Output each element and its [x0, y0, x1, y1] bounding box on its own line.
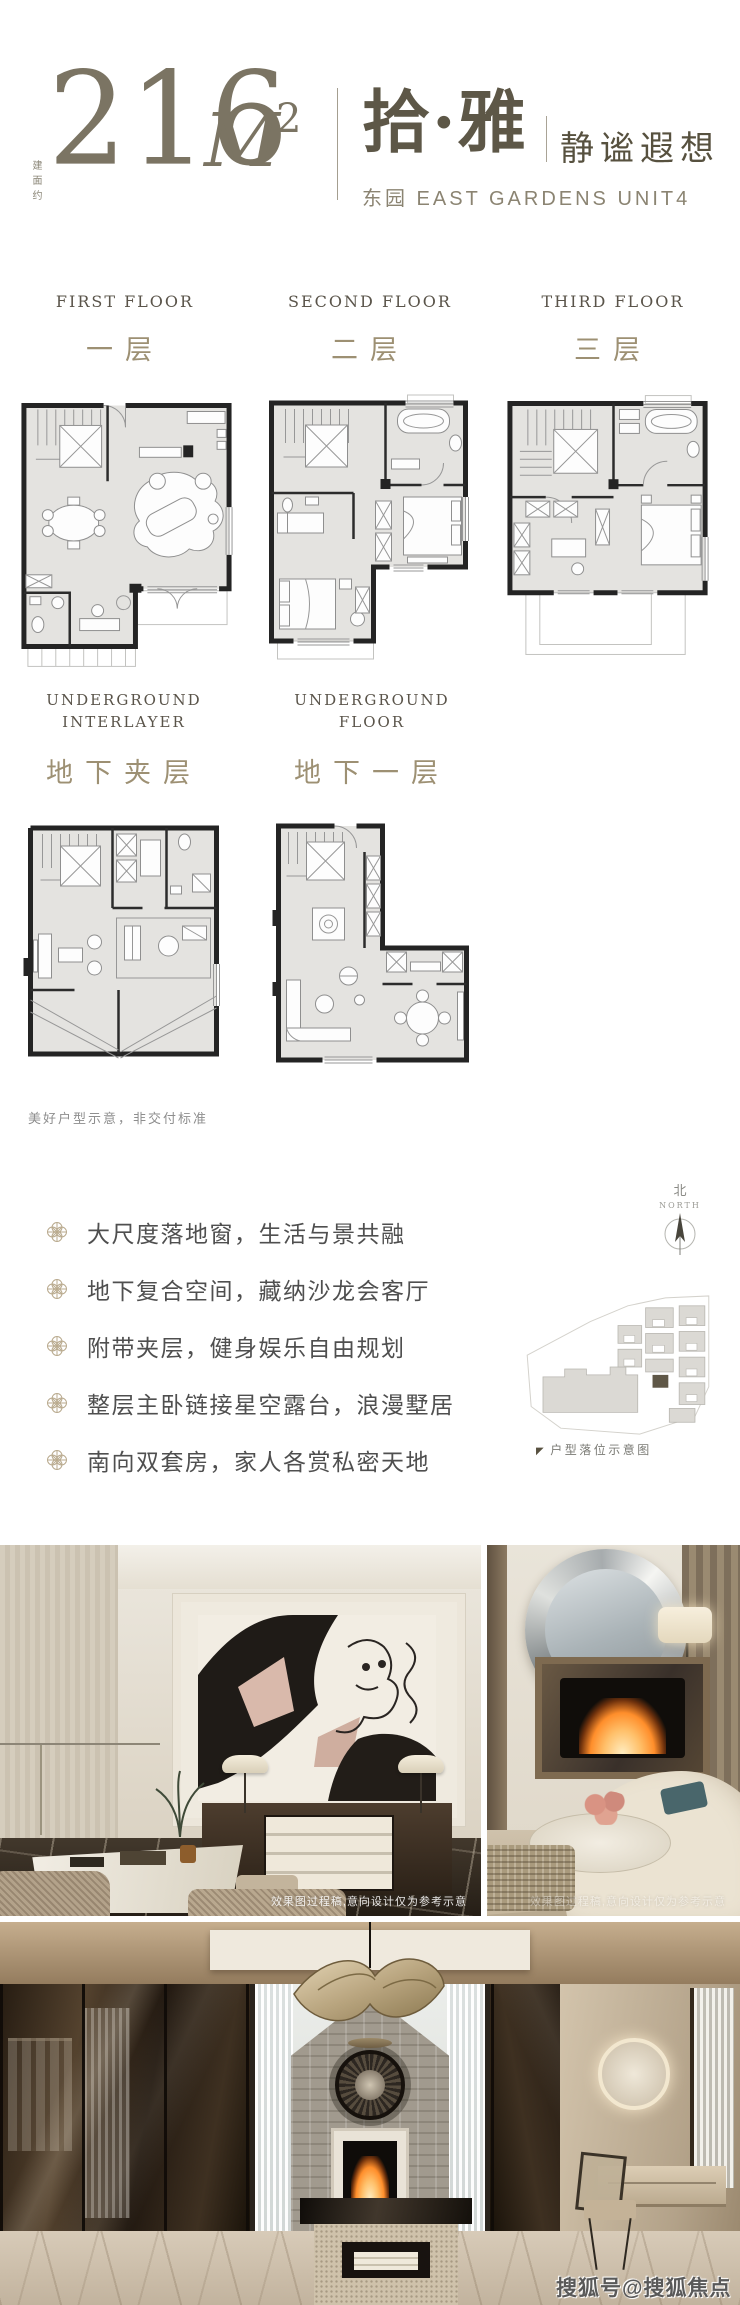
- fire-flames: [579, 1698, 667, 1754]
- wall-panel: [0, 1545, 118, 1853]
- area-unit: M: [204, 104, 280, 178]
- fireplace: [535, 1657, 710, 1779]
- floor-label-cn: 地下一层: [258, 751, 486, 790]
- area-prefix: 建面约: [28, 160, 43, 205]
- highlighted-unit: [653, 1375, 669, 1388]
- plant: [150, 1767, 210, 1842]
- pendant-saucer: [348, 2038, 392, 2048]
- floorplan-second-floor: [253, 389, 487, 674]
- disclaimer-text: 美好户型示意，非交付标准: [28, 1108, 208, 1127]
- feature-item: 大尺度落地窗，生活与景共融: [44, 1203, 455, 1260]
- feature-text: 大尺度落地窗，生活与景共融: [87, 1215, 406, 1249]
- floor-column-third: THIRD FLOOR 三层: [496, 292, 730, 674]
- table-lamp: [222, 1755, 268, 1813]
- page: 建面约 216 M 2 拾·雅 静谧遐想 东园 EAST GARDENS UNI…: [0, 0, 740, 2305]
- photo-fireplace-lounge: 效果图过程稿,意向设计仅为参考示意: [487, 1545, 740, 1916]
- pendant-lamp: [288, 1950, 452, 2047]
- floor-lamp: [658, 1607, 712, 1643]
- floor-label-cn: 三层: [496, 328, 730, 367]
- feature-list: 大尺度落地窗，生活与景共融 地下复合空间，藏纳沙龙会客厅 附带夹层，健身娱乐自由…: [44, 1203, 455, 1488]
- north-compass-icon: [658, 1210, 702, 1258]
- floorplan-underground-floor: [258, 816, 486, 1071]
- sunburst-ornament: [335, 2050, 405, 2120]
- vanity-mirror: [598, 2038, 670, 2110]
- watermark: 搜狐号@搜狐焦点鄂州站: [556, 2272, 740, 2305]
- island-niche: [342, 2242, 430, 2278]
- unit-name: 拾·雅: [362, 86, 528, 161]
- subtitle: 东园 EAST GARDENS UNIT4: [362, 182, 690, 211]
- stair-railing: [0, 1743, 160, 1745]
- floor-label-en: SECOND FLOOR: [253, 292, 487, 311]
- floorplan-first-floor-svg: [8, 389, 242, 669]
- feature-item: 南向双套房，家人各赏私密天地: [44, 1431, 455, 1488]
- stone-island: [314, 2224, 458, 2305]
- floor-label-en: THIRD FLOOR: [496, 292, 730, 311]
- floorplan-underground-floor-svg: [264, 816, 480, 1066]
- towels: [354, 2252, 418, 2270]
- flower-bouquet: [579, 1791, 633, 1825]
- siteplan-caption: ◤户型落位示意图: [536, 1441, 652, 1458]
- flower-bullet-icon: [44, 1219, 70, 1245]
- photo-living-room-art: 效果图过程稿,意向设计仅为参考示意: [0, 1545, 481, 1916]
- table-lamp: [398, 1755, 444, 1813]
- feature-text: 附带夹层，健身娱乐自由规划: [87, 1329, 406, 1363]
- feature-text: 南向双套房，家人各赏私密天地: [87, 1443, 430, 1477]
- siteplan-marker-icon: ◤: [536, 1446, 546, 1457]
- armchair: [0, 1871, 110, 1916]
- siteplan-svg: [520, 1292, 715, 1442]
- feature-item: 地下复合空间，藏纳沙龙会客厅: [44, 1260, 455, 1317]
- window-right: [690, 1988, 734, 2188]
- floor-label-en: UNDERGROUND INTERLAYER: [39, 690, 209, 734]
- feature-text: 整层主卧链接星空露台，浪漫墅居: [87, 1386, 455, 1420]
- photo-dressing-room: [0, 1922, 740, 2305]
- flower-bullet-icon: [44, 1390, 70, 1416]
- feature-item: 整层主卧链接星空露台，浪漫墅居: [44, 1374, 455, 1431]
- island-counter-top: [300, 2198, 472, 2224]
- floor-label-cn: 地下夹层: [10, 751, 238, 790]
- flower-bullet-icon: [44, 1276, 70, 1302]
- feature-text: 地下复合空间，藏纳沙龙会客厅: [87, 1272, 430, 1306]
- floorplan-third-floor: [496, 389, 730, 674]
- header-divider-small: [546, 116, 547, 162]
- glass-wardrobe-left: [0, 1978, 250, 2231]
- north-label-en: NORTH: [652, 1201, 708, 1210]
- floor-column-underground-interlayer: UNDERGROUND INTERLAYER 地下夹层: [10, 690, 238, 1071]
- floorplan-third-floor-svg: [496, 389, 730, 669]
- tagline: 静谧遐想: [560, 121, 720, 170]
- sheer-curtain-reflection: [84, 2008, 130, 2218]
- siteplan: [520, 1292, 715, 1447]
- floor-label-cn: 一层: [8, 328, 242, 367]
- sheer-curtain: [447, 1978, 485, 2231]
- feature-item: 附带夹层，健身娱乐自由规划: [44, 1317, 455, 1374]
- header-divider: [337, 88, 338, 200]
- hanging-clothes: [8, 2038, 72, 2151]
- floorplan-underground-interlayer: [10, 816, 238, 1071]
- floorplan-second-floor-svg: [253, 389, 487, 669]
- render-disclaimer: 效果图过程稿,意向设计仅为参考示意: [271, 1893, 467, 1909]
- north-label-cn: 北: [652, 1180, 708, 1199]
- floorplan-underground-interlayer-svg: [16, 816, 232, 1066]
- floor-column-second: SECOND FLOOR 二层: [253, 292, 487, 674]
- north-compass: 北 NORTH: [652, 1180, 708, 1263]
- render-disclaimer: 效果图过程稿,意向设计仅为参考示意: [530, 1893, 726, 1909]
- floor-column-first: FIRST FLOOR 一层: [8, 292, 242, 674]
- flower-bullet-icon: [44, 1333, 70, 1359]
- floor-label-en: FIRST FLOOR: [8, 292, 242, 311]
- floor-label-en: UNDERGROUND FLOOR: [287, 690, 457, 734]
- fire-flames: [351, 2156, 389, 2199]
- floor-column-underground-floor: UNDERGROUND FLOOR 地下一层: [258, 690, 486, 1071]
- floor-label-cn: 二层: [253, 328, 487, 367]
- area-unit-superscript: 2: [276, 96, 301, 142]
- flower-bullet-icon: [44, 1447, 70, 1473]
- vanity-wall: [560, 1978, 740, 2231]
- vase: [180, 1845, 196, 1863]
- floorplan-first-floor: [8, 389, 242, 674]
